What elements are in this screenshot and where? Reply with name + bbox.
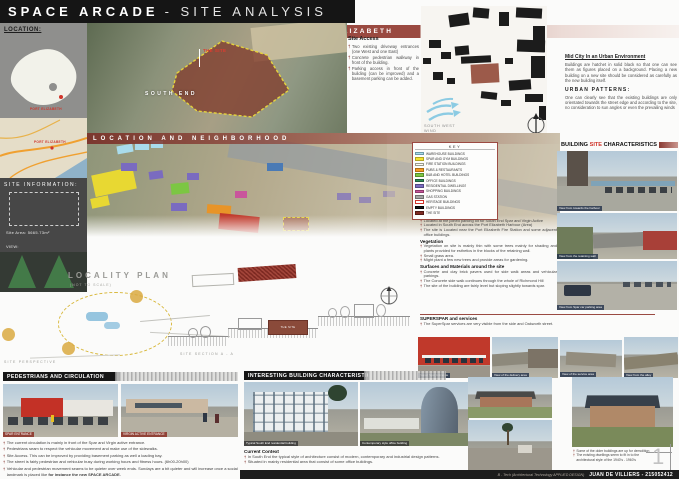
photo-caption: View from the retaining wall — [557, 254, 598, 259]
location-label: LOCATION: — [4, 27, 41, 33]
site-access-bullets: †Two existing driveway entrances (one We… — [348, 44, 419, 82]
photo-caption: Contemporary style office building — [360, 441, 409, 446]
photo-caption: View from Spar car parking area — [557, 305, 604, 310]
locality-plan-title: LOCALITY PLAN — [68, 271, 171, 280]
aerial-site-label: THE SITE — [203, 48, 226, 53]
superspar-block: SUPERSPAR and services †The SuperSpar se… — [420, 313, 655, 335]
interesting-header-tail — [364, 371, 446, 380]
poster-title-main: SPACE ARCADE — [8, 4, 159, 19]
photo-caption: View from towards the harbour — [557, 206, 602, 211]
legend-label: OFFICE BUILDINGS — [426, 179, 456, 183]
legend-swatch — [415, 211, 424, 215]
mid-city-heading: Mid City In an Urban Environment — [565, 54, 677, 60]
surfaces-bullets: †Concrete and clay brick pavers used for… — [420, 270, 557, 289]
aerial-district-label: SOUTH END — [145, 91, 197, 97]
bullet-item: †The site is Located near the Port Eliza… — [420, 228, 557, 238]
road-map-city-label: PORT ELIZABETH — [34, 140, 66, 144]
figure-ground-site-block — [471, 63, 500, 83]
footer-bar: B - Tech (Architectural Technology APPLI… — [240, 470, 679, 479]
header-accent-bar — [659, 142, 678, 148]
photo-virgin-active-entrance: VIRGIN ACTIVE ENTRANCE — [121, 384, 238, 437]
mid-city-body: Buildings are hatchet in solid black so … — [565, 62, 677, 84]
photo-residential-building: Typical South End residential building — [244, 382, 358, 446]
photo-existing-house — [572, 377, 673, 447]
photo-contemporary-building: Contemporary style office building — [360, 382, 469, 446]
photo-retaining-wall: View from the retaining wall — [557, 213, 677, 259]
site-section-label: SITE SECTION A - A — [180, 352, 234, 356]
site-aerial-photo: THE SITE SOUTH END — [87, 23, 347, 133]
site-access-heading: Site Access — [348, 36, 419, 42]
locality-plan-subtitle: (NOT TO SCALE) — [70, 283, 112, 287]
key-title: KEY — [415, 144, 495, 150]
legend-swatch — [415, 184, 424, 188]
site-analysis-poster: SPACE ARCADE - SITE ANALYSIS SOUTH END, … — [0, 0, 679, 479]
bullet-item-last: †Vehicular and pedestrian movement seams… — [3, 466, 239, 479]
location-panel: LOCATION: PORT ELIZABETH — [0, 23, 87, 118]
pedestrians-header-tail — [115, 372, 238, 381]
bullet-item: †Might plant a few new trees and provide… — [420, 258, 557, 263]
page-number: 1 — [652, 446, 664, 468]
footer-program: B - Tech (Architectural Technology APPLI… — [498, 473, 585, 477]
photo-caption: VIRGIN ACTIVE ENTRANCE — [121, 432, 167, 437]
site-boundary-overlay — [167, 35, 302, 125]
photo-street-palms — [468, 420, 552, 470]
site-notes-block: The Site †Located at the joined parking … — [420, 212, 557, 312]
footer-author: JUAN DE VILLIERS - 215052412 — [589, 472, 673, 478]
legend-swatch — [415, 190, 424, 194]
superspar-heading: SUPERSPAR and services — [420, 314, 655, 321]
photo-alley-view: View from the alley — [624, 337, 678, 378]
legend-swatch — [415, 179, 424, 183]
map-key-legend: KEY WAREHOUSE BUILDINGS SPAR AND GYM BUI… — [412, 142, 498, 220]
photo-caption: SPAR ENTRANCE — [3, 432, 34, 437]
figure-ground-diagram: SOUTH WEST WIND — [421, 6, 547, 142]
legend-swatch — [415, 152, 424, 156]
bullet-item: †Concrete pedestrian walkway in front of… — [348, 55, 419, 66]
bullet-item: †Two existing driveway entrances (one We… — [348, 44, 419, 55]
legend-label: B&B AND HOTEL BUILDINGS — [426, 173, 469, 177]
legend-label: WAREHOUSE BUILDINGS — [426, 152, 465, 156]
interesting-header: INTERESTING BUILDING CHARACTERISTICS — [244, 371, 368, 380]
photo-parking-area: View from Spar car parking area — [557, 261, 677, 310]
legend-swatch — [415, 206, 424, 210]
poster-title-sub: - SITE ANALYSIS — [165, 4, 327, 19]
legend-label: SHOPPING BUILDINGS — [426, 189, 461, 193]
view-label: VIEW: — [6, 244, 19, 249]
site-information-title: SITE INFORMATION: — [4, 182, 78, 188]
legend-label: EMPTY BUILDINGS — [426, 206, 455, 210]
bullet-item: †The SuperSpar services are very visible… — [420, 322, 655, 327]
legend-label: PUBS & RESTAURANTS — [426, 168, 462, 172]
legend-label: THE SITE — [426, 211, 440, 215]
header-bar: SPACE ARCADE - SITE ANALYSIS — [0, 0, 355, 23]
location-city-label: PORT ELIZABETH — [30, 107, 62, 111]
key-rows: WAREHOUSE BUILDINGS SPAR AND GYM BUILDIN… — [415, 151, 495, 216]
legend-label: HERITAGE BUILDINGS — [426, 200, 460, 204]
legend-label: SPAR AND GYM BUILDINGS — [426, 157, 468, 161]
site-access-block: Site Access †Two existing driveway entra… — [348, 36, 419, 140]
pedestrians-header: PEDESTRIANS AND CIRCULATION — [3, 372, 119, 381]
legend-swatch — [415, 173, 424, 177]
urban-patterns-heading: URBAN PATTERNS: — [565, 87, 677, 93]
photo-caption: Typical South End residential building — [244, 441, 298, 446]
wind-arrows-icon — [425, 94, 469, 126]
legend-swatch — [415, 168, 424, 172]
older-buildings-notes: †Some of the older buildings are up for … — [573, 449, 657, 471]
legend-swatch — [415, 157, 424, 161]
site-section-sketch: THE SITE — [168, 300, 410, 350]
photo-delivery-area: View of the delivery area — [492, 337, 558, 378]
road-map: PORT ELIZABETH — [0, 118, 87, 178]
site-boundary-sketch — [9, 192, 79, 226]
photo-service-area: View of the service area — [560, 340, 622, 377]
legend-swatch — [415, 195, 424, 199]
legend-label: FIRE STATION BUILDINGS — [426, 162, 466, 166]
site-perspective-label: SITE PERSPECTIVE — [4, 360, 56, 364]
compass-rose-icon — [378, 284, 400, 308]
legend-swatch — [415, 200, 424, 204]
road-map-graphic — [0, 118, 87, 178]
building-site-characteristics-header: BUILDING SITE CHARACTERISTICS — [561, 140, 678, 150]
legend-row: THE SITE — [415, 210, 495, 215]
bullet-item: †The existing dwellings seem to fit in t… — [573, 453, 657, 462]
perspective-site-building — [238, 264, 297, 282]
legend-label: GAS STATION — [426, 195, 447, 199]
the-site-bullets: †Located at the joined parking lot for S… — [420, 219, 557, 238]
mid-city-block: Mid City In an Urban Environment Buildin… — [565, 54, 677, 140]
space-arcade-emphasis: for instance the new SPACE ARCADE. — [48, 472, 120, 477]
legend-label: RESIDENTIAL DWELLINGS — [426, 184, 466, 188]
superspar-bullets: †The SuperSpar services are very visible… — [420, 322, 655, 327]
south-africa-map — [3, 37, 84, 113]
section-site-box: THE SITE — [268, 320, 308, 335]
bullet-item: †Parking access in front of the building… — [348, 66, 419, 82]
photo-spar-entrance: SPAR ENTRANCE — [3, 384, 118, 437]
site-area-value: Site Area: 5665.73m² — [6, 230, 50, 235]
photo-harbour-view: View from towards the harbour — [557, 151, 677, 211]
photo-old-dwelling — [468, 377, 552, 418]
perspective-neighbor-building — [192, 273, 235, 287]
vegetation-bullets: †Vegetation on site is mainly thin with … — [420, 244, 557, 263]
urban-patterns-body: One can clearly see that the existing bu… — [565, 95, 677, 111]
pedestrians-bullets: †The current circulation is mainly in fr… — [3, 440, 239, 478]
bullet-item: †Situated in mainly residential area tha… — [244, 459, 470, 464]
legend-swatch — [415, 163, 424, 167]
bullet-item: †The site of the building are fairly lev… — [420, 284, 557, 289]
